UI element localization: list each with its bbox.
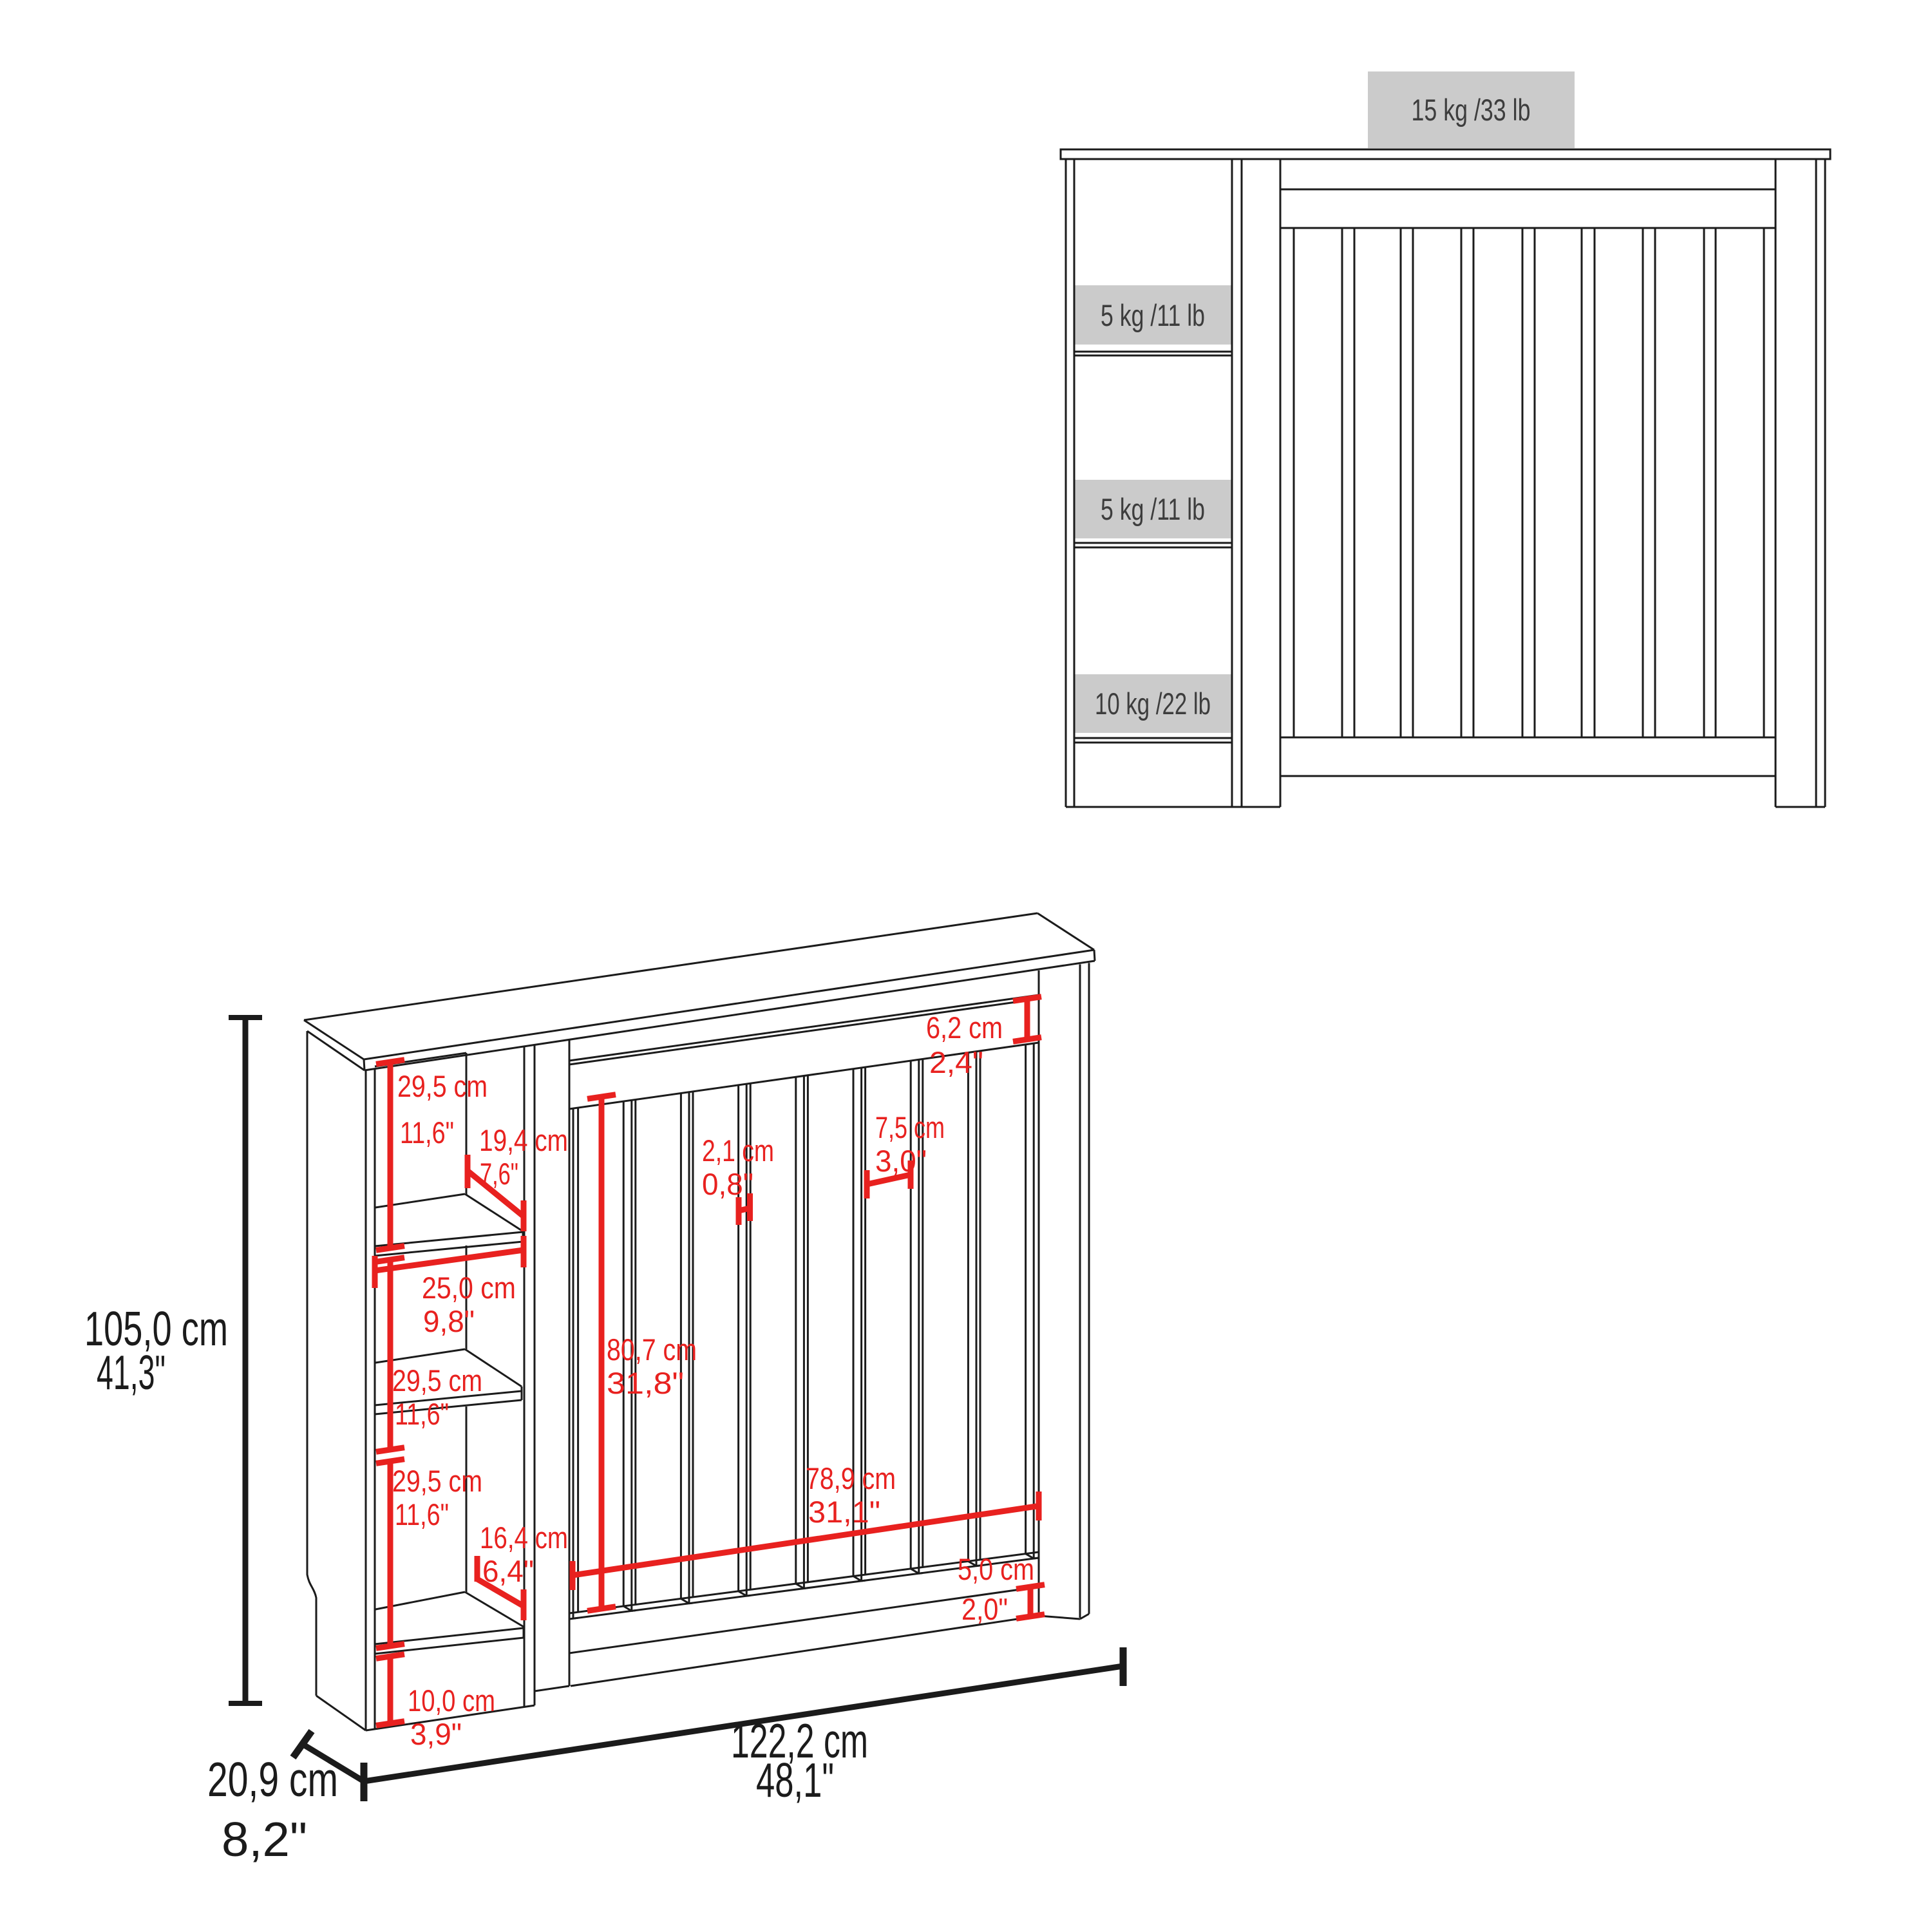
svg-text:11,6": 11,6" xyxy=(400,1115,454,1150)
svg-text:5 kg /11 lb: 5 kg /11 lb xyxy=(1101,492,1205,526)
svg-text:3,9": 3,9" xyxy=(410,1717,462,1751)
svg-text:7,5 cm: 7,5 cm xyxy=(875,1110,945,1144)
svg-text:29,5 cm: 29,5 cm xyxy=(392,1464,482,1498)
svg-text:16,4 cm: 16,4 cm xyxy=(480,1520,568,1555)
svg-text:9,8": 9,8" xyxy=(423,1304,475,1338)
svg-text:41,3": 41,3" xyxy=(97,1345,166,1399)
svg-text:3,0": 3,0" xyxy=(875,1144,927,1178)
svg-text:6,4": 6,4" xyxy=(482,1554,534,1588)
svg-text:19,4 cm: 19,4 cm xyxy=(479,1123,568,1157)
svg-text:2,1 cm: 2,1 cm xyxy=(702,1133,774,1168)
svg-text:11,6": 11,6" xyxy=(395,1397,449,1431)
svg-text:78,9 cm: 78,9 cm xyxy=(806,1461,896,1495)
svg-text:48,1": 48,1" xyxy=(756,1753,834,1807)
svg-text:0,8": 0,8" xyxy=(702,1167,753,1201)
svg-text:2,0": 2,0" xyxy=(961,1592,1008,1626)
svg-text:10 kg /22 lb: 10 kg /22 lb xyxy=(1095,687,1211,721)
svg-text:10,0 cm: 10,0 cm xyxy=(408,1683,495,1718)
svg-text:29,5 cm: 29,5 cm xyxy=(392,1363,482,1397)
svg-text:20,9 cm: 20,9 cm xyxy=(207,1752,338,1806)
svg-text:6,2 cm: 6,2 cm xyxy=(926,1010,1003,1045)
svg-text:31,8": 31,8" xyxy=(607,1366,684,1400)
svg-text:15 kg /33 lb: 15 kg /33 lb xyxy=(1412,93,1531,127)
svg-text:25,0 cm: 25,0 cm xyxy=(422,1271,516,1305)
svg-text:7,6": 7,6" xyxy=(480,1157,518,1191)
svg-text:11,6": 11,6" xyxy=(395,1497,449,1531)
svg-text:2,4": 2,4" xyxy=(929,1045,983,1079)
svg-text:5,0 cm: 5,0 cm xyxy=(958,1552,1034,1586)
svg-text:8,2": 8,2" xyxy=(222,1812,307,1866)
svg-text:80,7 cm: 80,7 cm xyxy=(607,1332,697,1367)
svg-text:29,5 cm: 29,5 cm xyxy=(397,1069,488,1103)
svg-text:31,1": 31,1" xyxy=(808,1495,880,1529)
svg-text:5 kg /11 lb: 5 kg /11 lb xyxy=(1101,298,1205,332)
